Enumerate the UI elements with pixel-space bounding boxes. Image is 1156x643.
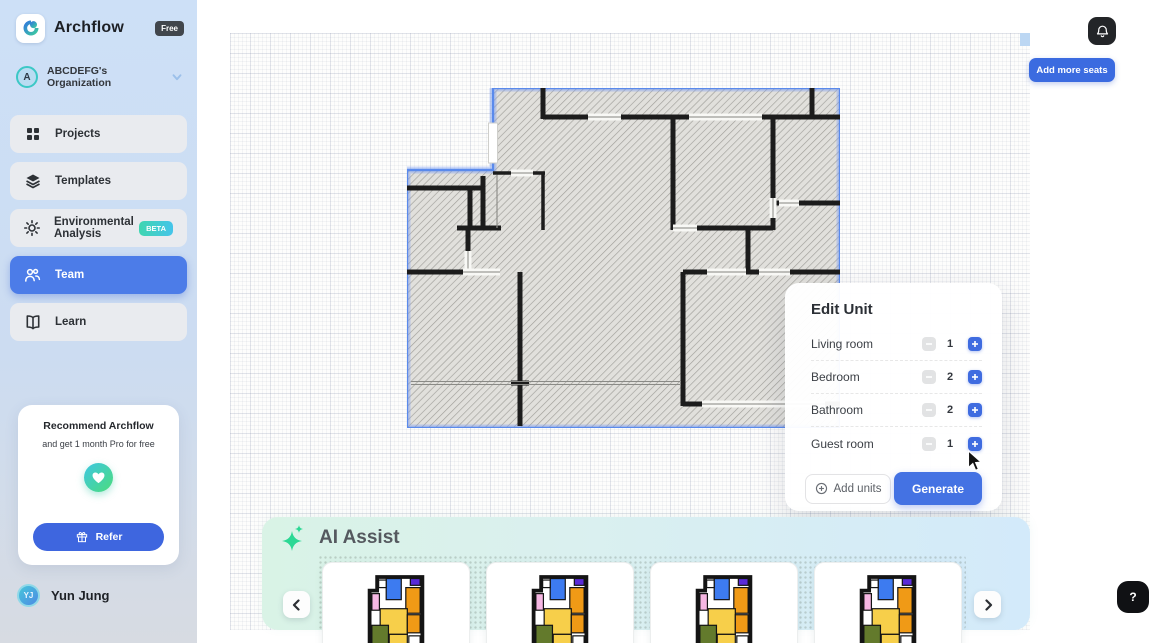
plus-circle-icon (815, 482, 828, 495)
book-icon (24, 314, 41, 331)
unit-row-living-room: Living room 1 (811, 328, 982, 361)
edit-unit-panel: Edit Unit Living room 1 Bedroom 2 Bathro… (785, 283, 1002, 511)
sidebar: Archflow Free A ABCDEFG's Organization P… (0, 0, 197, 643)
increment-button[interactable] (968, 437, 982, 451)
sun-icon (24, 220, 40, 237)
increment-button[interactable] (968, 403, 982, 417)
user-profile[interactable]: YJ Yun Jung (17, 584, 110, 607)
add-units-button[interactable]: Add units (805, 474, 891, 504)
user-name: Yun Jung (51, 588, 110, 603)
carousel-next-button[interactable] (974, 591, 1001, 618)
sidebar-item-learn[interactable]: Learn (10, 303, 187, 341)
archflow-logo-icon (16, 14, 45, 43)
referral-card: Recommend Archflow and get 1 month Pro f… (18, 405, 179, 565)
floor-plan[interactable] (407, 88, 840, 428)
grid-icon (24, 126, 41, 143)
unit-row-bathroom: Bathroom 2 (811, 394, 982, 427)
plan-badge: Free (155, 21, 184, 36)
carousel-prev-button[interactable] (283, 591, 310, 618)
org-avatar: A (16, 66, 38, 88)
ai-suggestion-thumbnail-4[interactable] (814, 562, 962, 643)
team-icon (24, 267, 41, 284)
sidebar-item-team[interactable]: Team (10, 256, 187, 294)
sidebar-item-templates[interactable]: Templates (10, 162, 187, 200)
brand: Archflow Free (16, 12, 184, 44)
unit-count: 1 (941, 438, 959, 450)
heart-icon (84, 463, 113, 492)
refer-button[interactable]: Refer (33, 523, 164, 551)
app-title: Archflow (54, 19, 155, 37)
user-avatar: YJ (17, 584, 40, 607)
referral-subtitle: and get 1 month Pro for free (18, 439, 179, 449)
help-button[interactable]: ? (1117, 581, 1149, 613)
organization-switcher[interactable]: A ABCDEFG's Organization (16, 64, 184, 90)
ai-suggestion-thumbnail-3[interactable] (650, 562, 798, 643)
org-name: ABCDEFG's Organization (47, 65, 170, 89)
decrement-button[interactable] (922, 437, 936, 451)
chevron-left-icon (291, 599, 303, 611)
generate-button[interactable]: Generate (894, 472, 982, 505)
layout-thumbnail-icon (362, 571, 430, 643)
unit-count: 1 (941, 338, 959, 350)
edit-unit-title: Edit Unit (811, 301, 982, 318)
ai-suggestion-thumbnail-2[interactable] (486, 562, 634, 643)
unit-row-bedroom: Bedroom 2 (811, 361, 982, 394)
add-more-seats-button[interactable]: Add more seats (1029, 58, 1115, 82)
ai-assist-title: AI Assist (319, 527, 400, 549)
beta-badge: BETA (139, 221, 173, 236)
referral-title: Recommend Archflow (18, 420, 179, 432)
decrement-button[interactable] (922, 370, 936, 384)
increment-button[interactable] (968, 370, 982, 384)
unit-count: 2 (941, 371, 959, 383)
sidebar-item-environmental-analysis[interactable]: Environmental Analysis BETA (10, 209, 187, 247)
decrement-button[interactable] (922, 337, 936, 351)
sidebar-item-projects[interactable]: Projects (10, 115, 187, 153)
unit-count: 2 (941, 404, 959, 416)
ai-suggestion-thumbnail-1[interactable] (322, 562, 470, 643)
chevron-down-icon (170, 70, 184, 84)
unit-row-guest-room: Guest room 1 (811, 427, 982, 460)
increment-button[interactable] (968, 337, 982, 351)
layers-icon (24, 173, 41, 190)
notifications-button[interactable] (1088, 17, 1116, 45)
gift-icon (75, 530, 89, 544)
layout-thumbnail-icon (526, 571, 594, 643)
decrement-button[interactable] (922, 403, 936, 417)
layout-thumbnail-icon (690, 571, 758, 643)
layout-thumbnail-icon (854, 571, 922, 643)
canvas-scrollbar[interactable] (1020, 33, 1030, 46)
chevron-right-icon (982, 599, 994, 611)
sidebar-nav: Projects Templates Environmental Analysi… (10, 115, 187, 350)
sparkle-icon (282, 525, 306, 551)
bell-icon (1095, 24, 1110, 39)
